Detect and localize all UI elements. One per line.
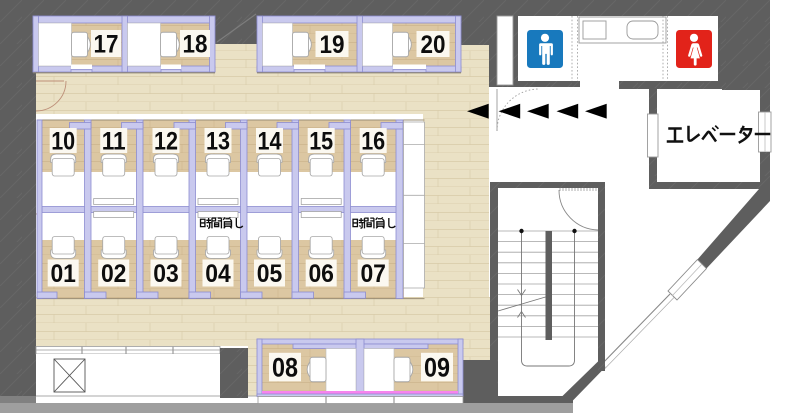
svg-text:18: 18 [183,31,208,59]
svg-text:13: 13 [206,128,230,156]
svg-text:11: 11 [102,128,126,156]
svg-text:15: 15 [309,128,333,156]
svg-text:12: 12 [154,128,178,156]
svg-text:14: 14 [258,128,282,156]
svg-text:08: 08 [272,353,298,383]
svg-text:02: 02 [101,260,127,288]
svg-text:06: 06 [308,260,334,288]
svg-text:01: 01 [50,260,76,288]
svg-text:10: 10 [51,128,75,156]
svg-text:20: 20 [421,31,446,59]
svg-text:03: 03 [153,260,179,288]
svg-text:04: 04 [205,260,231,288]
svg-text:16: 16 [361,128,385,156]
svg-text:07: 07 [360,260,386,288]
svg-text:05: 05 [257,260,283,288]
svg-text:09: 09 [424,353,450,383]
svg-text:19: 19 [320,31,345,59]
svg-text:17: 17 [94,31,119,59]
